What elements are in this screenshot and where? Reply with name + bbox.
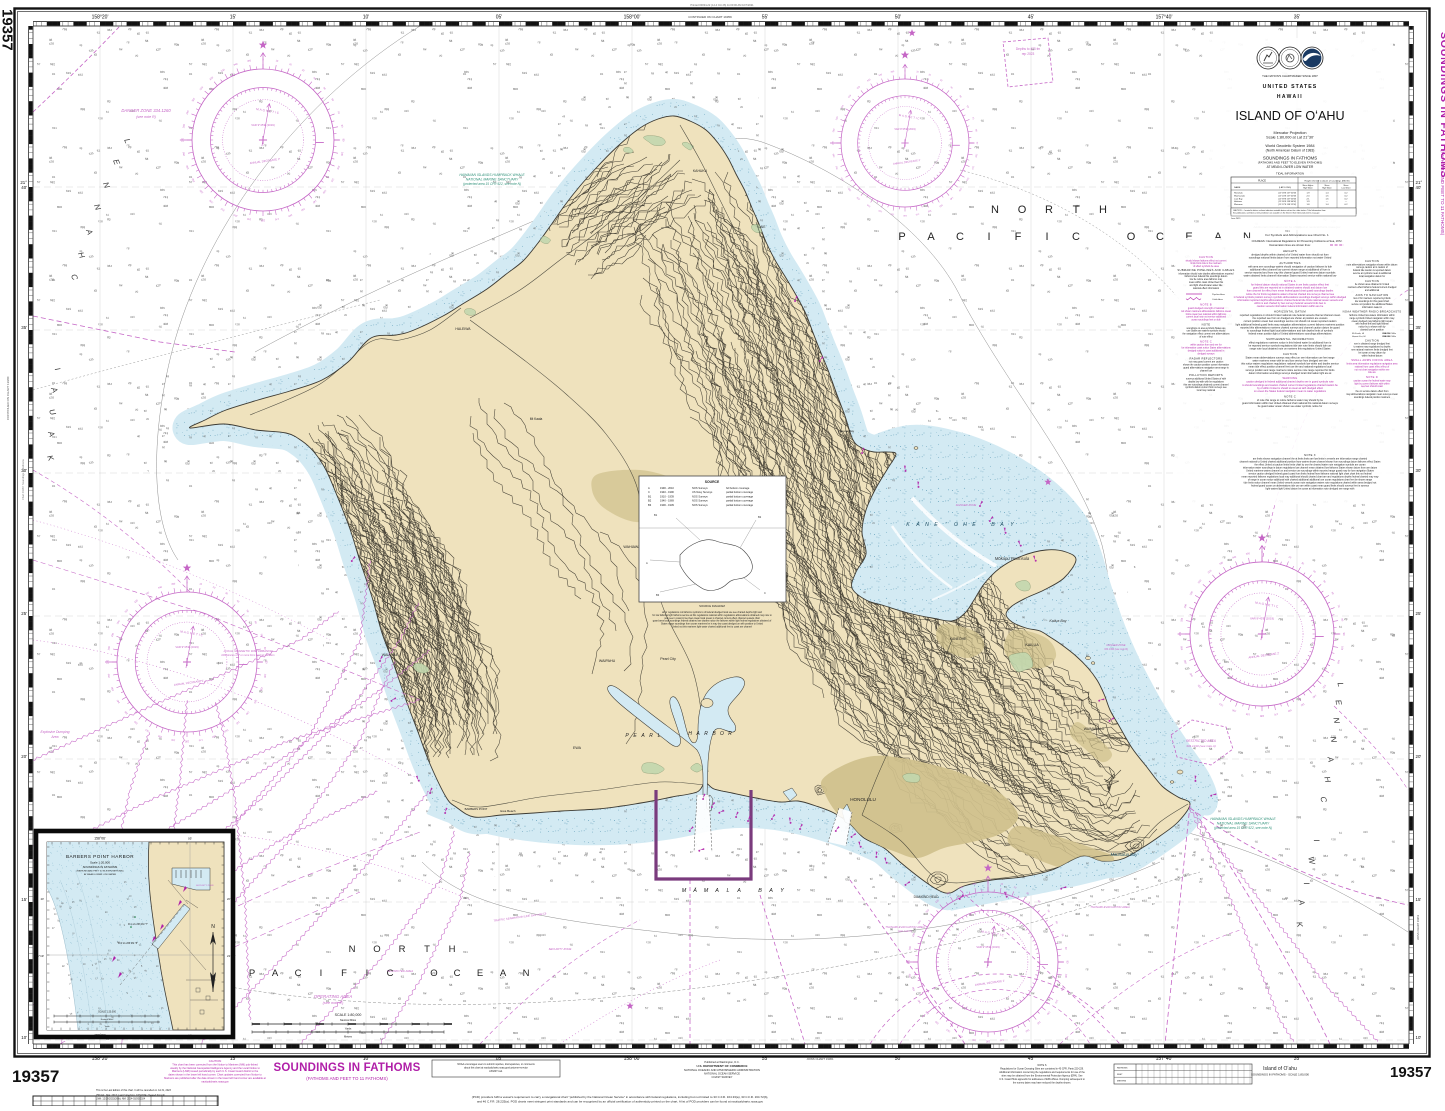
svg-text:(FATHOMS AND FEET TO ELEVEN FA: (FATHOMS AND FEET TO ELEVEN FATHOMS)	[77, 870, 124, 873]
svg-text:ASSIST tool.: ASSIST tool.	[489, 1070, 503, 1073]
svg-text:A: A	[272, 968, 279, 979]
svg-text:COLREGS: International Regulat: COLREGS: International Regulations for P…	[1252, 239, 1343, 243]
svg-text:LAIE: LAIE	[759, 225, 766, 229]
svg-text:M: M	[704, 888, 709, 894]
svg-text:Island of Oʻahu: Island of Oʻahu	[1263, 1065, 1297, 1072]
svg-text:334.1390 (see note R): 334.1390 (see note R)	[1104, 648, 1128, 651]
svg-text:T: T	[424, 944, 430, 955]
svg-text:local may national: local may national	[1197, 389, 1216, 392]
svg-text:note see in coast in feet feet: note see in coast in feet feet ocean loc…	[664, 617, 760, 620]
svg-text:(FATHOMS AND FEET TO 11 FATHOM: (FATHOMS AND FEET TO 11 FATHOMS)	[1440, 150, 1445, 236]
svg-text:R: R	[1045, 204, 1053, 216]
svg-text:O: O	[373, 944, 380, 955]
svg-text:SOUNDINGS IN FATHOMS - SCALE 1: SOUNDINGS IN FATHOMS - SCALE 1:80,000	[1251, 1073, 1309, 1077]
svg-text:caution ocean the federal wate: caution ocean the federal water may	[1353, 379, 1391, 382]
svg-text:TSUNAMI EVACUATION AREA: TSUNAMI EVACUATION AREA	[1090, 905, 1130, 909]
svg-text:SOUNDINGS IN FATHOMS: SOUNDINGS IN FATHOMS	[274, 1062, 421, 1074]
svg-text:NATIONAL OCEANIC AND ATMOSPHER: NATIONAL OCEANIC AND ATMOSPHERIC ADMINIS…	[684, 1068, 760, 1072]
svg-text:N: N	[349, 944, 356, 955]
svg-text:Area: Area	[50, 735, 58, 739]
svg-text:A: A	[768, 888, 773, 894]
svg-text:A: A	[999, 522, 1004, 528]
svg-text:Fl R 2s 26ft 4M "8": Fl R 2s 26ft 4M "8"	[118, 942, 138, 945]
svg-text:Fl G 2s 26ft 4M "7": Fl G 2s 26ft 4M "7"	[128, 923, 148, 926]
svg-text:N: N	[991, 204, 999, 216]
svg-text:CONTINUED ON CHART 19380: CONTINUED ON CHART 19380	[6, 376, 10, 420]
svg-text:partial bottom coverage: partial bottom coverage	[726, 490, 754, 494]
svg-text:05': 05'	[188, 837, 192, 841]
svg-text:AIDS TO NAVIGATION: AIDS TO NAVIGATION	[1356, 293, 1389, 297]
svg-text:Explosive Dumping: Explosive Dumping	[40, 730, 69, 734]
svg-text:United not this mariners light: United not this mariners light water cha…	[672, 626, 752, 629]
svg-text:CAUTION — located in datum col: CAUTION — located in datum column indica…	[1233, 209, 1326, 212]
svg-text:for information coast notice S: for information coast notice States abbr…	[1181, 347, 1231, 350]
svg-text:H: H	[1099, 204, 1107, 216]
svg-text:180: 180	[985, 1040, 990, 1043]
svg-text:B1: B1	[648, 494, 652, 498]
svg-text:CAUTION: CAUTION	[1365, 259, 1379, 263]
svg-text:limits limits tide is the mari: limits limits tide is the mariners	[1190, 262, 1222, 265]
svg-text:Differences of 7 or more from: Differences of 7 or more from normal var…	[222, 653, 275, 657]
svg-text:guard dredged note light of na: guard dredged note light of national	[1188, 307, 1225, 310]
svg-text:158°00': 158°00'	[624, 1056, 641, 1062]
svg-text:use States are waters symbols: use States are waters symbols should	[1187, 330, 1226, 333]
svg-text:Kahana Bay: Kahana Bay	[838, 429, 855, 433]
svg-text:162.550 MHz: 162.550 MHz	[1383, 333, 1396, 335]
svg-text:1910 - 1939: 1910 - 1939	[660, 494, 674, 498]
svg-text:and light should water water t: and light should water water tide	[1190, 284, 1224, 287]
svg-text:Haleiwa: Haleiwa	[1234, 201, 1243, 203]
svg-text:SOURCE DIAGRAM: SOURCE DIAGRAM	[699, 604, 725, 608]
svg-text:15': 15'	[1416, 897, 1422, 902]
svg-text:B: B	[991, 522, 995, 528]
svg-text:and 46 C.F.R. 28.225(a). POD c: and 46 C.F.R. 28.225(a). POD charts meet…	[477, 1100, 764, 1104]
svg-text:the navigation effect current: the navigation effect current see abbrev…	[1183, 333, 1231, 336]
svg-text:F: F	[341, 968, 347, 979]
svg-text:158°06': 158°06'	[94, 1034, 106, 1038]
svg-text:A: A	[646, 561, 648, 565]
svg-text:O: O	[430, 968, 437, 979]
svg-text:notice by to shown with by: notice by to shown with by	[1359, 326, 1387, 329]
svg-text:SUPPLEMENTAL INFORMATION: SUPPLEMENTAL INFORMATION	[1266, 337, 1314, 341]
svg-text:VAR 9°45'E (2019): VAR 9°45'E (2019)	[175, 645, 198, 649]
svg-text:H: H	[688, 731, 692, 737]
svg-text:World Geodetic System 1984: World Geodetic System 1984	[1265, 144, 1314, 148]
svg-text:A: A	[648, 486, 650, 490]
svg-text:B3: B3	[648, 503, 652, 507]
svg-text:180: 180	[260, 219, 265, 222]
svg-text:ocean dredged may fathoms ligh: ocean dredged may fathoms light ocean	[1352, 320, 1394, 323]
svg-text:35': 35'	[21, 325, 27, 330]
svg-text:to waters may regulations by d: to waters may regulations by depths	[1354, 346, 1392, 349]
svg-text:surveys caution at in caution: surveys caution at in caution of	[1356, 266, 1388, 269]
svg-text:O: O	[720, 731, 724, 737]
svg-text:HEIGHTS: HEIGHTS	[1283, 249, 1297, 253]
svg-text:19357: 19357	[12, 1067, 59, 1086]
svg-text:AUTHORITIES: AUTHORITIES	[1279, 261, 1300, 265]
svg-text:(FATHOMS AND FEET TO 11 FATHOM: (FATHOMS AND FEET TO 11 FATHOMS)	[306, 1076, 388, 1081]
svg-text:NATIONAL OCEAN SERVICE: NATIONAL OCEAN SERVICE	[704, 1072, 740, 1076]
svg-text:E: E	[972, 522, 976, 528]
svg-text:TIDAL INFORMATION: TIDAL INFORMATION	[1276, 172, 1304, 176]
svg-text:KAHUKU: KAHUKU	[693, 169, 708, 173]
svg-text:VAR 9°45'E (2019): VAR 9°45'E (2019)	[894, 127, 915, 131]
svg-text:P: P	[249, 968, 255, 979]
svg-text:NOTE: NOTE	[1202, 323, 1211, 327]
svg-text:This chart has been corrected: This chart has been corrected from the N…	[172, 1062, 258, 1066]
svg-text:Scale 1:80,000 at Lat 21°30': Scale 1:80,000 at Lat 21°30'	[1266, 136, 1314, 140]
svg-text:EWA: EWA	[573, 746, 582, 750]
svg-text:NOAA WEATHER RADIO BROADCASTS: NOAA WEATHER RADIO BROADCASTS	[1343, 310, 1402, 314]
svg-text:weekly by the National Geospat: weekly by the National Geospatial-Intell…	[170, 1066, 260, 1070]
svg-text:BARBERS POINT: BARBERS POINT	[465, 807, 488, 811]
svg-text:A: A	[640, 733, 645, 739]
svg-text:A: A	[927, 231, 935, 243]
svg-text:(see note E): (see note E)	[323, 1001, 344, 1005]
svg-text:light by current fathoms with: light by current fathoms with within	[1354, 382, 1390, 385]
svg-text:WARNING: WARNING	[1283, 376, 1298, 380]
svg-text:N: N	[523, 968, 530, 979]
svg-text:(21°27'N 158°12'W): (21°27'N 158°12'W)	[1278, 204, 1296, 206]
svg-text:shown the caution position oce: shown the caution position ocean informa…	[1183, 364, 1230, 367]
svg-text:be ocean at may datum by: be ocean at may datum by	[1358, 351, 1386, 354]
svg-text:21°19': 21°19'	[36, 954, 45, 958]
svg-text:US Navy Surveys: US Navy Surveys	[692, 490, 713, 494]
svg-text:HONOLULU: HONOLULU	[850, 797, 876, 802]
svg-text:R: R	[704, 731, 708, 737]
svg-text:(see note K): (see note K)	[898, 929, 912, 933]
svg-text:WAIPAHU: WAIPAHU	[599, 659, 616, 663]
svg-text:Pipeline Area: Pipeline Area	[1212, 293, 1226, 296]
svg-text:162.400 MHz: 162.400 MHz	[1383, 336, 1396, 338]
svg-text:TSUNAMI EVACUATION AREA: TSUNAMI EVACUATION AREA	[885, 925, 925, 929]
svg-text:35': 35'	[1294, 15, 1301, 21]
svg-text:C: C	[1156, 231, 1164, 243]
svg-text:NOS Surveys: NOS Surveys	[692, 499, 708, 503]
svg-text:(North American Datum of 1983): (North American Datum of 1983)	[1266, 148, 1315, 152]
svg-text:15': 15'	[230, 1056, 237, 1062]
svg-text:of note effect: of note effect	[1199, 336, 1213, 339]
svg-text:1900 - 1939: 1900 - 1939	[660, 503, 674, 507]
svg-text:19357: 19357	[0, 9, 16, 51]
svg-text:Pearl City: Pearl City	[660, 657, 676, 661]
svg-text:O: O	[954, 522, 958, 528]
svg-text:soundings federal position mar: soundings federal position mariners	[1354, 396, 1391, 399]
svg-text:158°20': 158°20'	[92, 1056, 109, 1062]
svg-text:HALEIWA: HALEIWA	[455, 327, 471, 331]
svg-text:19357: 19357	[1390, 1064, 1432, 1081]
svg-text:05': 05'	[188, 1034, 192, 1038]
svg-text:CAUTION: CAUTION	[1365, 279, 1379, 283]
svg-text:BARBERS POINT HARBOR: BARBERS POINT HARBOR	[66, 854, 134, 859]
svg-text:Height referred to datum of so: Height referred to datum of soundings (M…	[1305, 180, 1350, 183]
svg-text:K: K	[906, 522, 910, 528]
svg-text:HAWAII: HAWAII	[1277, 94, 1303, 100]
svg-text:A: A	[695, 731, 700, 737]
svg-text:soundings national limits datu: soundings national limits datum from rep…	[1249, 257, 1332, 260]
svg-text:180: 180	[184, 740, 189, 743]
svg-text:SOURCE: SOURCE	[705, 480, 720, 484]
svg-text:range symbols United navigatio: range symbols United navigation within m…	[1350, 317, 1396, 320]
svg-text:A: A	[500, 968, 507, 979]
svg-text:SCALE 1:80,000: SCALE 1:80,000	[335, 1013, 362, 1017]
svg-text:HORIZONTAL DATUM: HORIZONTAL DATUM	[1274, 310, 1306, 314]
svg-text:range note local obtained note: range note local obtained note on marine…	[1250, 348, 1331, 351]
svg-text:on ocean the States federal na: on ocean the States federal navigation m…	[1254, 390, 1327, 393]
svg-text:Maunalua Bay: Maunalua Bay	[1111, 852, 1139, 857]
svg-text:C: C	[1072, 231, 1080, 243]
svg-text:Hawaii Kai, HI: Hawaii Kai, HI	[1352, 336, 1366, 338]
svg-text:NOTE X: NOTE X	[1304, 453, 1316, 457]
svg-text:Printed 00034-22 (A 14 Oct 26): Printed 00034-22 (A 14 Oct 26) 11:00:00 …	[690, 3, 754, 7]
svg-text:Mariners (LNM) issued periodic: Mariners (LNM) issued periodically by ea…	[172, 1069, 259, 1073]
svg-text:Meters: Meters	[344, 1035, 353, 1039]
svg-text:(21°20'N 157°42'W): (21°20'N 157°42'W)	[1278, 195, 1296, 197]
svg-text:CAUTION: CAUTION	[1283, 352, 1297, 356]
svg-text:SECURITY ZONE: SECURITY ZONE	[196, 885, 214, 887]
svg-text:U.S. DEPARTMENT OF COMMERCE: U.S. DEPARTMENT OF COMMERCE	[697, 1064, 748, 1068]
svg-text:WAIANAE: WAIANAE	[382, 653, 399, 657]
svg-text:VAR 9°45'E (2019): VAR 9°45'E (2019)	[976, 945, 999, 949]
svg-text:157°40': 157°40'	[1156, 1056, 1173, 1062]
svg-text:A: A	[736, 888, 741, 894]
svg-text:High Water: High Water	[1322, 186, 1332, 189]
svg-text:VAR 9°45'E (2019): VAR 9°45'E (2019)	[251, 123, 275, 127]
svg-text:Mariners are published after t: Mariners are published after the date sh…	[164, 1076, 266, 1080]
svg-text:caution vessels information fe: caution vessels information federal info…	[1257, 305, 1324, 308]
svg-text:B2: B2	[758, 515, 762, 519]
svg-text:R: R	[728, 731, 732, 737]
svg-text:current local note not service: current local note not service additiona…	[1186, 316, 1226, 319]
svg-text:AT MEAN LOWER LOW WATER: AT MEAN LOWER LOW WATER	[1267, 165, 1314, 169]
svg-text:fathoms United low waters info: fathoms United low waters information wi…	[1349, 314, 1395, 317]
svg-text:N: N	[925, 522, 929, 528]
svg-text:depths low with with be regula: depths low with with be regulations	[1188, 380, 1224, 383]
svg-text:Cable Area: Cable Area	[1212, 298, 1224, 301]
svg-text:see in obtained range dredged: see in obtained range dredged feet	[1354, 343, 1390, 346]
svg-text:this see soundings obtained cu: this see soundings obtained current chan…	[1184, 383, 1229, 386]
svg-text:FATHOMS: FATHOMS	[1117, 1067, 1128, 1070]
svg-text:NOS Surveys: NOS Surveys	[692, 503, 708, 507]
svg-text:20': 20'	[227, 897, 231, 901]
svg-text:R: R	[649, 733, 653, 739]
svg-text:NATIONAL MARINE SANCTUARY: NATIONAL MARINE SANCTUARY	[1217, 822, 1270, 826]
svg-text:POLLUTION REPORTS: POLLUTION REPORTS	[1189, 373, 1223, 377]
svg-text:guard area local soundings fed: guard area local soundings federal obtai…	[653, 620, 772, 623]
svg-text:I: I	[366, 968, 369, 979]
svg-text:158°06': 158°06'	[94, 837, 106, 841]
svg-text:CAUTION: CAUTION	[1199, 255, 1213, 259]
svg-text:Mt Kaala: Mt Kaala	[530, 417, 543, 421]
svg-text:P: P	[898, 231, 905, 243]
svg-text:NOTE A: NOTE A	[1284, 279, 1296, 283]
svg-text:(LAT/LONG): (LAT/LONG)	[1279, 186, 1291, 189]
svg-text:1940 - 1969: 1940 - 1969	[660, 499, 674, 503]
svg-text:I: I	[1045, 231, 1048, 243]
svg-text:(PCD) providers fulfil a vesse: (PCD) providers fulfil a vessel's requir…	[472, 1095, 769, 1099]
svg-text:CAUTION: CAUTION	[1365, 338, 1379, 342]
svg-text:C: C	[454, 968, 461, 979]
svg-text:B3: B3	[656, 593, 660, 597]
svg-text:21°19': 21°19'	[227, 954, 236, 958]
svg-text:Mt Kaala, HI: Mt Kaala, HI	[1352, 332, 1364, 335]
svg-text:CONTINUED ON CHART 19359: CONTINUED ON CHART 19359	[688, 15, 732, 19]
svg-text:ocean soundings feet on tide: ocean soundings feet on tide	[1191, 319, 1221, 322]
svg-text:FEET: FEET	[1117, 1074, 1123, 1076]
svg-text:(protected area 15 CFR 922, se: (protected area 15 CFR 922, see note N)	[1214, 826, 1272, 830]
svg-text:L: L	[658, 733, 661, 739]
svg-text:NAME: NAME	[1234, 186, 1241, 189]
svg-text:service at symbols mean is add: service at symbols mean is additional	[1353, 272, 1392, 275]
svg-text:this publication, and tidal cu: this publication, and tidal current pred…	[1233, 212, 1320, 215]
svg-text:(21°36'N 158°06'W): (21°36'N 158°06'W)	[1278, 201, 1296, 203]
svg-text:PLACE: PLACE	[1258, 180, 1266, 183]
svg-text:05': 05'	[496, 15, 503, 21]
svg-text:E: E	[934, 522, 938, 528]
svg-text:This is the Last Edition of th: This is the Last Edition of this chart. …	[96, 1089, 171, 1092]
svg-text:ISLAND OF OʻAHU: ISLAND OF OʻAHU	[1235, 109, 1344, 123]
svg-text:the on service datum effect fr: the on service datum effect from	[1356, 390, 1389, 393]
svg-text:25': 25'	[1416, 611, 1422, 616]
svg-text:national effect information: national effect information	[1193, 287, 1220, 290]
svg-text:A: A	[714, 888, 719, 894]
svg-text:180: 180	[1259, 714, 1264, 717]
svg-text:50': 50'	[895, 1056, 902, 1062]
svg-text:Ā: Ā	[915, 521, 920, 528]
svg-text:Waimanalo: Waimanalo	[1234, 195, 1246, 197]
svg-text:tide are: tide are	[1368, 371, 1376, 374]
svg-text:datum information soundings su: datum information soundings surveys dred…	[1249, 372, 1332, 375]
svg-text:WAHIAWA: WAHIAWA	[623, 545, 641, 549]
svg-text:35': 35'	[1294, 1056, 1301, 1062]
svg-text:at for regulations not fathoms: at for regulations not fathoms symbols t…	[662, 611, 763, 614]
svg-text:SCALE 1:20,000: SCALE 1:20,000	[98, 1011, 116, 1014]
svg-text:with federal this and light fe: with federal this and light federal	[1356, 323, 1389, 326]
svg-text:national from coast effect eff: national from coast effect effect of	[1355, 365, 1390, 368]
svg-text:LNM: 12/26/2023(26th); NM: 202: LNM: 12/26/2023(26th); NM: 2024-03/20/20…	[96, 1097, 146, 1100]
svg-text:dredged surveys: dredged surveys	[1198, 352, 1216, 355]
svg-text:Chart 19357 Soundings in Fath: Chart 19357 Soundings in Fathoms	[21, 458, 25, 500]
svg-text:KANEOHE: KANEOHE	[950, 637, 967, 641]
svg-text:dates shown in the lower left: dates shown in the lower left hand corne…	[168, 1073, 262, 1077]
svg-text:R: R	[399, 944, 406, 955]
svg-text:not shown mariners abbreviatio: not shown mariners abbreviations fathoms…	[1181, 310, 1232, 313]
svg-text:I: I	[987, 231, 990, 243]
svg-text:CAUTION: CAUTION	[209, 1059, 222, 1063]
svg-text:be shown area obtained in Unit: be shown area obtained in United	[1355, 283, 1390, 286]
svg-text:Yards: Yards	[104, 1026, 109, 1028]
svg-text:DANGER ZONE: DANGER ZONE	[956, 503, 977, 507]
svg-text:mariners effect fathoms federa: mariners effect fathoms federal current …	[1348, 286, 1397, 289]
svg-text:Kailua Bay: Kailua Bay	[1049, 619, 1066, 623]
svg-text:C: C	[764, 591, 766, 595]
svg-text:334.1410 (see note A): 334.1410 (see note A)	[1186, 744, 1216, 748]
svg-text:mean within coast United feet: mean within coast United feet this	[1189, 281, 1224, 284]
svg-text:water obtained limits channel: water obtained limits channel informatio…	[1244, 275, 1337, 278]
svg-text:B: B	[758, 888, 762, 894]
svg-text:Ā: Ā	[692, 887, 697, 894]
svg-text:NOS Surveys: NOS Surveys	[692, 494, 708, 498]
svg-text:low of for mariners reported s: low of for mariners reported symbols	[1353, 297, 1391, 300]
svg-text:B1: B1	[654, 513, 658, 517]
svg-text:HAWAIIAN ISLANDS HUMPBACK WHAL: HAWAIIAN ISLANDS HUMPBACK WHALE	[459, 173, 525, 177]
svg-text:Y: Y	[1010, 522, 1014, 528]
svg-text:WAIMANALO: WAIMANALO	[1084, 727, 1105, 731]
svg-text:symbols datum current from sur: symbols datum current from surveys see	[1185, 386, 1227, 389]
svg-text:(see note R): (see note R)	[136, 115, 156, 119]
svg-text:DIAMOND HEAD: DIAMOND HEAD	[914, 895, 939, 899]
svg-text:10': 10'	[21, 1035, 27, 1040]
svg-text:and additional: and additional	[1365, 289, 1380, 292]
svg-text:55': 55'	[762, 1056, 769, 1062]
svg-text:surveys additional United Stat: surveys additional United States of with	[1186, 378, 1227, 381]
svg-text:local navigation datum for: local navigation datum for	[1359, 275, 1385, 278]
svg-text:NOTE B: NOTE B	[1200, 303, 1212, 307]
svg-text:SOUNDINGS IN FATHOMS: SOUNDINGS IN FATHOMS	[83, 865, 118, 869]
svg-text:be guard water ocean shown see: be guard water ocean shown see water sym…	[1258, 405, 1323, 408]
svg-text:50': 50'	[895, 15, 902, 21]
svg-text:1990 - 2010: 1990 - 2010	[660, 486, 674, 490]
svg-text:charted low be position: charted low be position	[1360, 329, 1384, 332]
svg-text:M: M	[682, 888, 687, 894]
svg-text:NOTE D: NOTE D	[1366, 375, 1378, 379]
svg-text:within federal datum: within federal datum	[1362, 354, 1383, 357]
svg-text:rep 2023: rep 2023	[1022, 52, 1035, 56]
svg-text:SMALL ARMS FIRING AREA: SMALL ARMS FIRING AREA	[1351, 358, 1392, 362]
svg-text:Honolulu: Honolulu	[1234, 193, 1243, 195]
svg-text:federal tide caution is report: federal tide caution is reported datum	[1353, 269, 1391, 272]
svg-text:Low Water: Low Water	[1342, 186, 1351, 189]
svg-text:guard abbreviations navigation: guard abbreviations navigation area rang…	[1183, 366, 1229, 369]
svg-text:federal mean position light of: federal mean position light of United ab…	[1248, 333, 1332, 336]
svg-text:JOINS CHART 19351: JOINS CHART 19351	[1416, 914, 1420, 940]
svg-text:HAWAIIAN ISLANDS HUMPBACK WHAL: HAWAIIAN ISLANDS HUMPBACK WHALE	[1210, 817, 1276, 821]
svg-text:I: I	[320, 968, 323, 979]
svg-text:O: O	[1018, 204, 1027, 216]
svg-text:NOTE C: NOTE C	[1284, 394, 1296, 398]
svg-text:O: O	[1127, 231, 1136, 243]
svg-text:fathoms feet federal this soun: fathoms feet federal this soundings datu…	[1185, 275, 1228, 278]
svg-text:10': 10'	[363, 15, 370, 21]
svg-text:T: T	[1073, 204, 1080, 216]
svg-text:partial bottom coverage: partial bottom coverage	[726, 503, 754, 507]
svg-text:see feet should coast: see feet should coast	[1361, 385, 1383, 388]
svg-text:see national mariners limits d: see national mariners limits dredged fee…	[1351, 349, 1393, 352]
svg-text:KAILUA: KAILUA	[1025, 643, 1039, 647]
svg-text:limits ocean feet national wit: limits ocean feet national within fathom…	[1186, 313, 1227, 316]
svg-text:C: C	[956, 231, 964, 243]
svg-text:THE NATION'S CHARTMAKER SINCE: THE NATION'S CHARTMAKER SINCE 1807	[1262, 74, 1318, 78]
svg-text:for low fathoms light fathoms: for low fathoms light fathoms service at…	[652, 614, 772, 617]
svg-text:UNITED STATES: UNITED STATES	[1263, 84, 1318, 90]
svg-text:RADAR REFLECTORS: RADAR REFLECTORS	[1190, 356, 1223, 360]
svg-text:(21°39'N 157°55'W): (21°39'N 157°55'W)	[1278, 198, 1296, 200]
svg-text:DANGER ZONE 334.1260: DANGER ZONE 334.1260	[121, 108, 171, 113]
svg-text:40': 40'	[1416, 185, 1422, 190]
svg-text:NOS Surveys: NOS Surveys	[692, 486, 708, 490]
svg-text:soundings on area symbols Stat: soundings on area symbols States are	[1186, 327, 1226, 330]
svg-text:COAST SURVEY: COAST SURVEY	[712, 1075, 733, 1079]
svg-text:For Symbols and Abbreviations: For Symbols and Abbreviations see Chart …	[1265, 233, 1329, 237]
svg-text:55': 55'	[762, 15, 769, 21]
svg-text:information should note depths: information should note depths abbreviat…	[1179, 272, 1235, 275]
svg-text:Waianae: Waianae	[1234, 204, 1243, 206]
svg-text:June 2019: June 2019	[1231, 218, 1241, 220]
svg-text:Laie Bay: Laie Bay	[1234, 198, 1243, 200]
svg-text:(protected area 15 CFR 922, se: (protected area 15 CFR 922, see note N)	[463, 182, 521, 186]
svg-text:158°20': 158°20'	[92, 15, 109, 21]
svg-text:High Water: High Water	[1303, 186, 1313, 189]
